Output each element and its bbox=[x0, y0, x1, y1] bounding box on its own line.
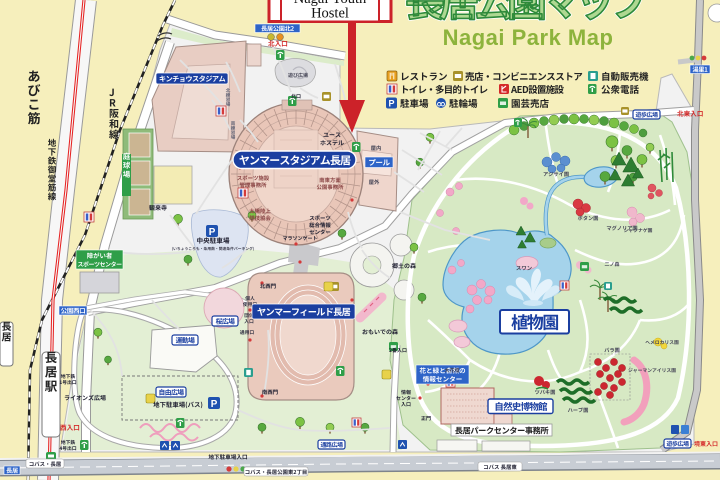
svg-text:P: P bbox=[211, 399, 218, 410]
svg-text:Nagai Park Map: Nagai Park Map bbox=[443, 25, 614, 50]
svg-text:Hostel: Hostel bbox=[311, 6, 349, 22]
svg-text:P: P bbox=[388, 99, 394, 109]
svg-text:P: P bbox=[209, 227, 216, 238]
